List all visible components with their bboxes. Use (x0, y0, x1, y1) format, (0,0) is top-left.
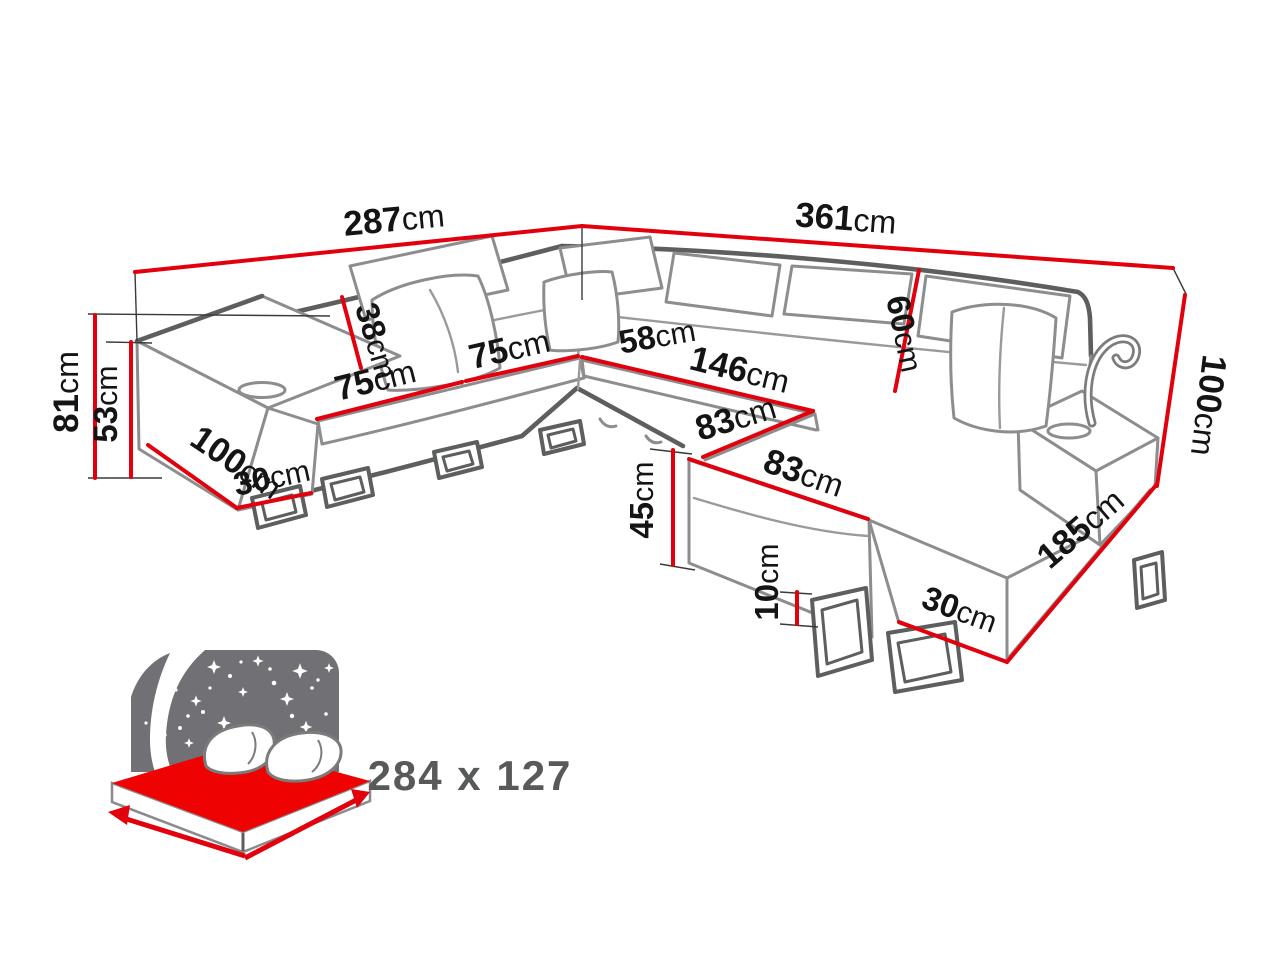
leg (1134, 552, 1165, 608)
cupholder-icon (1048, 424, 1090, 438)
moon-crescent-sliver (131, 653, 170, 772)
dim-45-label: 45cm (623, 461, 660, 538)
dim-361-label: 361cm (794, 195, 898, 241)
dim-53-label: 53cm (87, 365, 124, 442)
leg (322, 468, 373, 507)
extension-line (135, 272, 137, 341)
dim-100-right-line (1157, 295, 1185, 486)
headrest (666, 253, 780, 316)
extension-line (1173, 268, 1186, 294)
sleeping-function-icon: 284 x 127 (108, 650, 572, 858)
dim-100-right-label: 100cm (1183, 353, 1234, 458)
dim-287-label: 287cm (342, 195, 447, 244)
dim-81-label: 81cm (47, 351, 86, 433)
sleeping-area-label: 284 x 127 (368, 752, 573, 799)
leg (812, 588, 872, 676)
leg (540, 421, 584, 454)
sofa-dimension-diagram: 287cm 361cm 81cm 53cm 100cm 30cm 38cm 75… (0, 0, 1274, 955)
pillow (544, 271, 619, 350)
leg (434, 442, 482, 478)
dim-10-label: 10cm (748, 543, 785, 620)
cupholder-icon (239, 383, 285, 398)
corner-base-edge (578, 360, 580, 389)
